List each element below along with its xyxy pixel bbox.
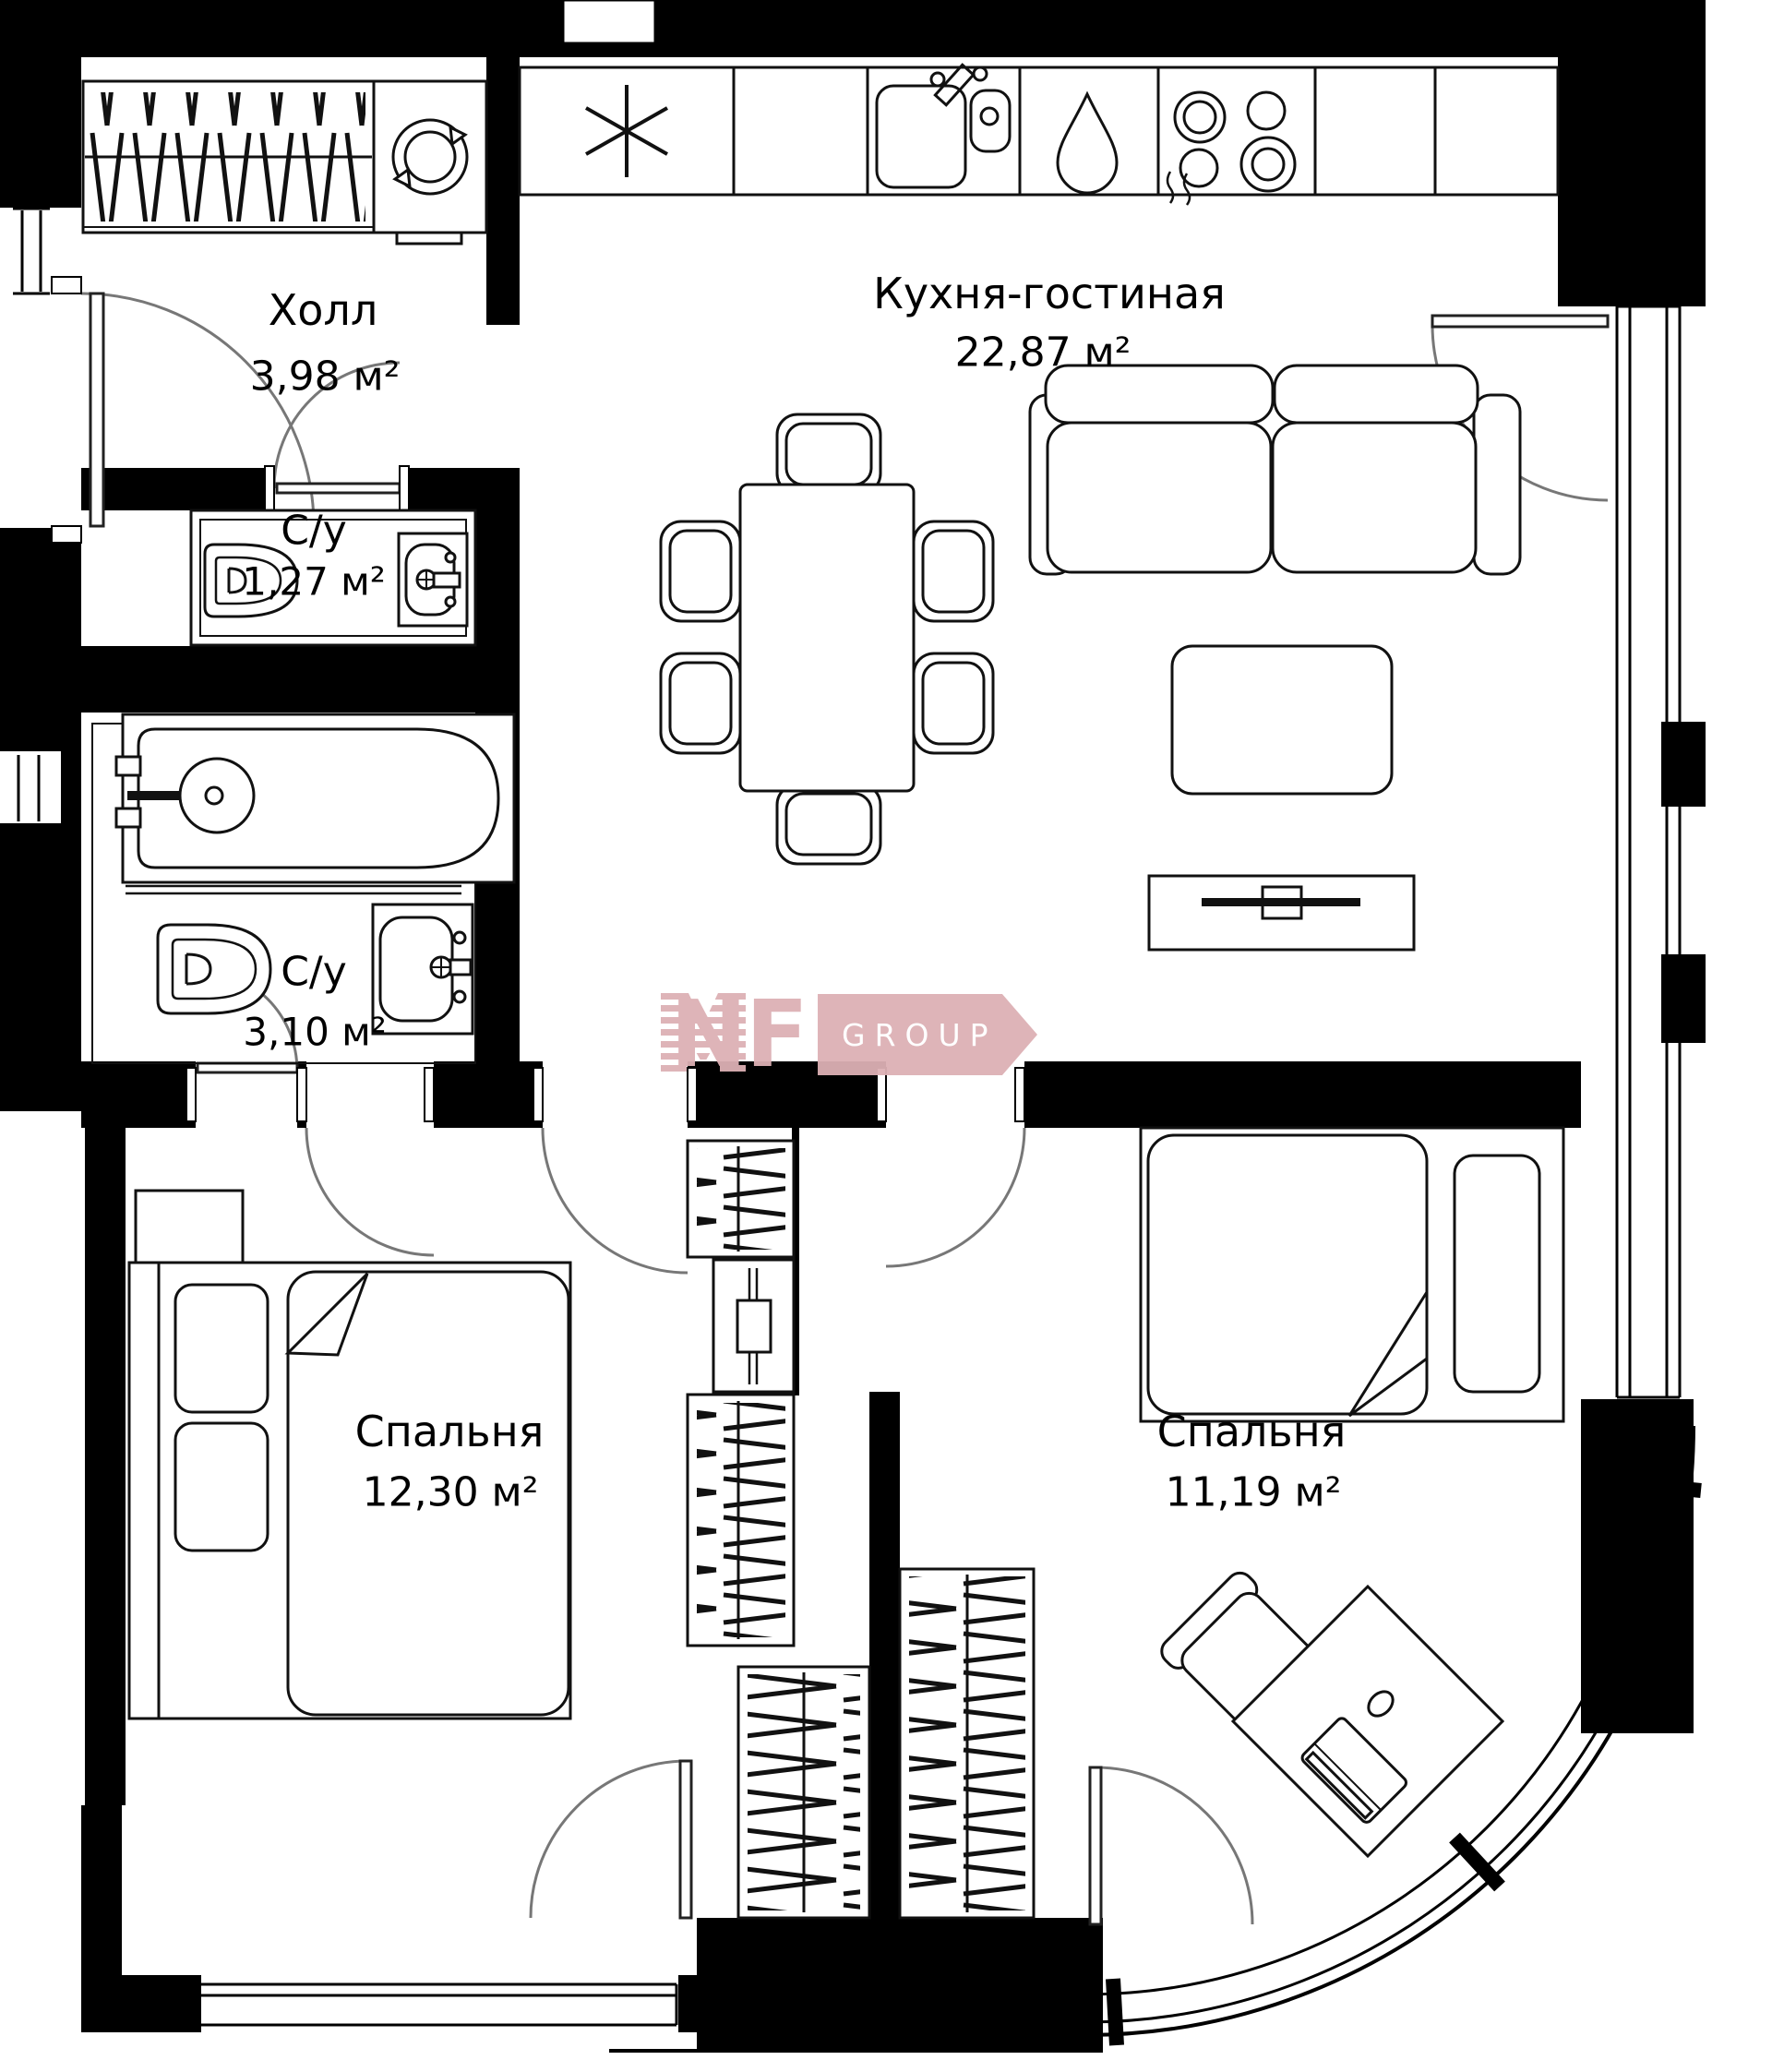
room-label-wc-name: С/у [281,508,347,555]
wardrobe-hangers-icon [688,1395,794,1646]
tv-stand-icon [1149,876,1414,950]
washbasin-icon [399,533,467,626]
toilet-icon [158,925,270,1013]
dining-set [661,414,993,864]
dining-table-icon [740,485,914,791]
chair [914,521,993,621]
chair [914,653,993,753]
nightstand [136,1191,243,1263]
nf-monogram-icon [661,993,746,1076]
wardrobe-hangers-icon [900,1569,1034,1918]
room-label-bath-area: 3,10 м² [243,1010,386,1055]
logo-banner: GROUP [818,994,1037,1075]
coffee-table-icon [1172,646,1392,794]
room-label-hall-name: Холл [269,285,377,335]
chair [777,414,880,494]
dressing-wardrobes [688,1141,1034,1918]
room-label-hall-area: 3,98 м² [250,353,401,401]
washing-machine-icon [374,81,486,244]
chair [777,784,880,864]
room-label-bedroom2-area: 11,19 м² [1166,1469,1342,1516]
chair [661,653,740,753]
wardrobe-hangers-icon [688,1141,794,1257]
room-label-bedroom1-area: 12,30 м² [363,1469,539,1516]
room-label-kitchen-area: 22,87 м² [955,329,1131,377]
mirror-dresser-icon [713,1260,794,1392]
sofa-icon [1030,365,1520,574]
room-label-kitchen-name: Кухня-гостиная [873,269,1226,318]
bathtub-icon [116,714,514,882]
floor-plan: Холл 3,98 м² С/у 1,27 м² С/у 3,10 м² Кух… [0,0,1772,2072]
bed-icon [1141,1128,1563,1421]
nf-group-watermark: NF GROUP [661,993,1037,1076]
washbasin-icon [373,904,473,1034]
hall-wardrobe [83,81,374,233]
room-label-wc-area: 1,27 м² [242,559,385,605]
wardrobe-hangers-icon [738,1667,869,1918]
kitchen-counter [520,65,1558,205]
room-label-bedroom2-name: Спальня [1157,1407,1347,1456]
chair [661,521,740,621]
room-label-bedroom1-name: Спальня [355,1407,545,1456]
room-label-bath-name: С/у [281,949,347,996]
logo-group-text: GROUP [818,1017,998,1053]
